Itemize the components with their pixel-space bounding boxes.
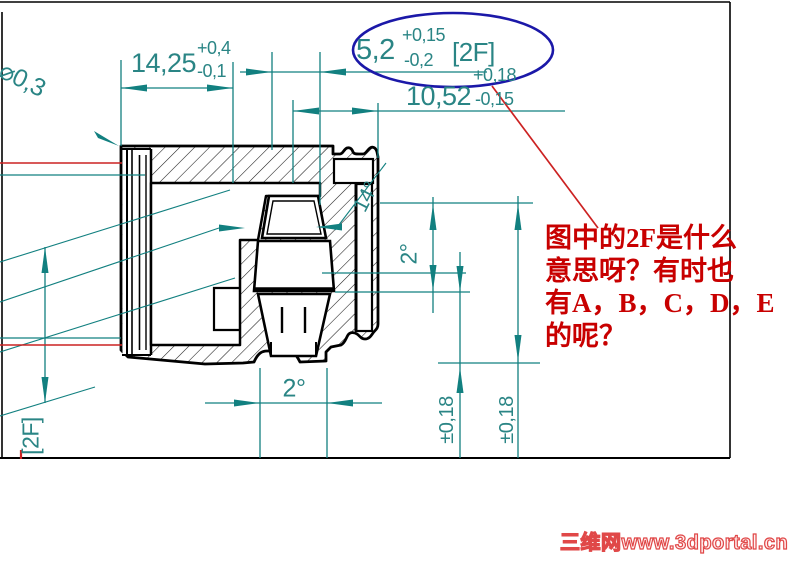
dim-tol-018-right: ±0,18	[497, 396, 517, 443]
watermark-text: 三维网www.3dportal.cn	[560, 526, 788, 555]
dim-5-2-value: 5,2	[356, 36, 395, 65]
question-line-1: 图中的2F是什么	[545, 222, 775, 255]
dim-5-2-tol-minus: -0,2	[404, 51, 433, 69]
dim-10-52-tol-plus: +0,18	[473, 66, 516, 84]
dim-flag-2f-left: [2F]	[20, 417, 43, 455]
dim-10-52-tol-minus: -0,15	[475, 90, 514, 108]
dim-10-52-value: 10,52	[406, 83, 471, 110]
cone-lower	[258, 294, 330, 356]
question-line-3: 有A，B，C，D，E	[545, 287, 775, 320]
part-section	[121, 146, 378, 364]
dim-14-25-tol-plus: +0,4	[197, 39, 231, 57]
cone-top	[262, 196, 326, 238]
cone-middle	[254, 241, 334, 291]
question-line-2: 意思呀？有时也	[545, 255, 775, 288]
dim-angle-2-bottom: 2°	[283, 377, 306, 402]
dim-14-25-value: 14,25	[131, 50, 196, 77]
dim-14-25-tol-minus: -0,1	[197, 62, 226, 80]
nose-entry-pocket	[334, 159, 373, 183]
dim-5-2-tol-plus: +0,15	[402, 26, 445, 44]
dim-5-2-flag-2f: [2F]	[452, 39, 495, 65]
dim-angle-2-side: 2°	[398, 244, 421, 265]
question-annotation: 图中的2F是什么 意思呀？有时也 有A，B，C，D，E 的呢？	[545, 222, 775, 352]
dim-tol-018-left: ±0,18	[437, 396, 457, 443]
cad-drawing-screenshot: 14,25 +0,4 -0,1 5,2 +0,15 -0,2 [2F] 10,5…	[0, 0, 802, 562]
question-line-4: 的呢？	[545, 320, 775, 353]
